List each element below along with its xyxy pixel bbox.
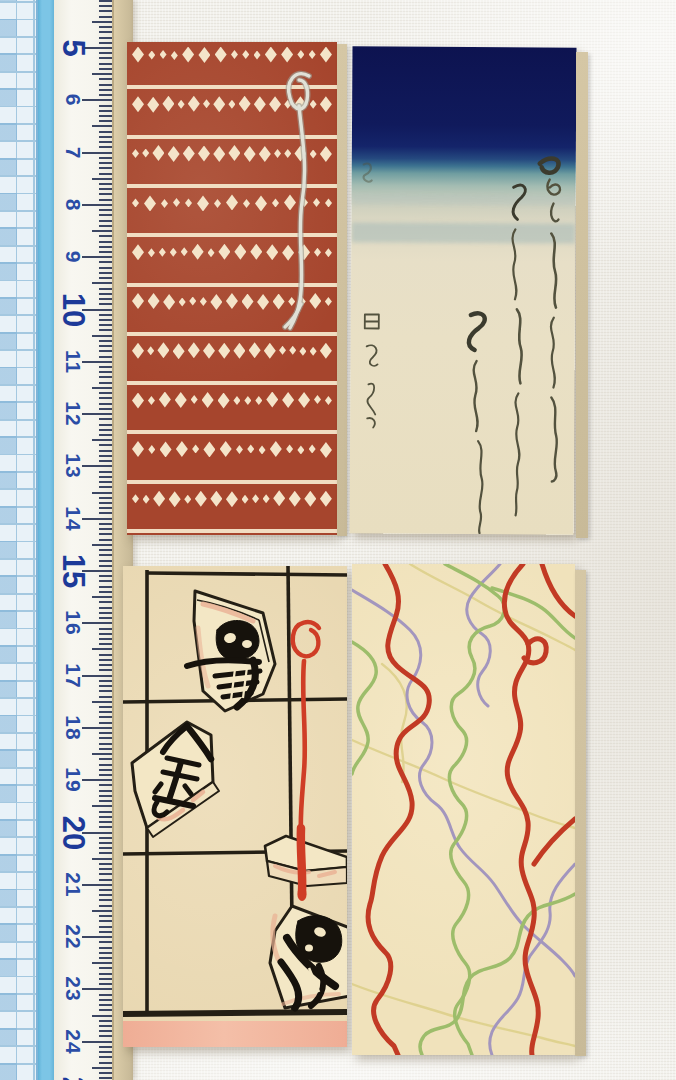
ruler-tick [99, 1062, 112, 1064]
ruler-tick [99, 94, 112, 96]
ruler-tick [99, 403, 112, 405]
ruler-tick [92, 492, 112, 494]
ruler-tick [99, 999, 112, 1001]
ruler-tick [99, 696, 112, 698]
ruler-tick [99, 78, 112, 80]
ruler-tick [99, 497, 112, 499]
ruler-tick [99, 235, 112, 237]
ruler-tick [92, 596, 112, 598]
ruler-number: 15 [55, 554, 91, 588]
ruler-tick [99, 84, 112, 86]
ruler-tick [99, 664, 112, 666]
ruler-tick [99, 314, 112, 316]
ruler-tick [99, 350, 112, 352]
ruler-tick [99, 816, 112, 818]
ruler-tick [99, 1025, 112, 1027]
ruler-tick [99, 173, 112, 175]
ruler-tick [82, 988, 112, 990]
ruler-tick [99, 591, 112, 593]
ruler-tick [99, 879, 112, 881]
ruler-tick [99, 994, 112, 996]
ruler-tick [99, 899, 112, 901]
ruler-tick [99, 748, 112, 750]
ruler-tick [99, 376, 112, 378]
ruler-number: 16 [61, 611, 85, 636]
ruler-tick [99, 967, 112, 969]
ruler-tick [99, 356, 112, 358]
ruler-tick [99, 418, 112, 420]
ruler-tick [92, 1015, 112, 1017]
ruler-tick [92, 805, 112, 807]
ruler-tick [92, 858, 112, 860]
ruler-tick [99, 1077, 112, 1079]
ruler-tick [99, 345, 112, 347]
ruler-tick [99, 743, 112, 745]
ruler-tick [99, 329, 112, 331]
ruler-tick [99, 952, 112, 954]
ruler-tick [92, 701, 112, 703]
ruler-tick [99, 889, 112, 891]
ruler-number: 22 [61, 924, 85, 949]
ruler-tick [82, 465, 112, 467]
shogi-piece-bottom [270, 906, 347, 1008]
ruler-number: 11 [61, 350, 85, 374]
ruler-tick [99, 863, 112, 865]
ruler-tick [99, 16, 112, 18]
ruler-tick [99, 800, 112, 802]
ruler-tick [99, 580, 112, 582]
ruler-tick [99, 790, 112, 792]
ruler-tick [99, 539, 112, 541]
ruler-tick [99, 983, 112, 985]
card-tangled-ribbons [352, 564, 575, 1055]
ruler-tick [82, 779, 112, 781]
ruler-tick [99, 784, 112, 786]
ruler-tick [82, 99, 112, 101]
ruler-tick [92, 910, 112, 912]
ruler-tick [92, 178, 112, 180]
photo-scene: 5678910111213141516171819202122232425 [0, 0, 676, 1080]
ruler-tick [99, 319, 112, 321]
ruler-tick [92, 230, 112, 232]
ruler-tick [99, 612, 112, 614]
ruler-tick [99, 837, 112, 839]
ruler-tick [99, 267, 112, 269]
ruler-tick [92, 962, 112, 964]
ruler-tick [99, 528, 112, 530]
ribbons-card-edge-shadow [575, 570, 586, 1056]
ruler-tick [99, 533, 112, 535]
ruler-tick [99, 429, 112, 431]
ruler-tick [99, 915, 112, 917]
ruler-tick [99, 131, 112, 133]
ruler-tick [99, 1046, 112, 1048]
ruler-tick [99, 188, 112, 190]
ruler-tick [99, 424, 112, 426]
ruler-tick [99, 659, 112, 661]
ruler-tick [99, 1009, 112, 1011]
ruler-tick [99, 26, 112, 28]
ruler-number: 19 [61, 768, 85, 793]
ruler-tick [92, 648, 112, 650]
ruler-tick [82, 204, 112, 206]
ruler-tick [99, 774, 112, 776]
calligraphy-ink [350, 46, 577, 534]
ruler-tick [92, 753, 112, 755]
ruler-tick [99, 669, 112, 671]
ruler-tick [99, 68, 112, 70]
ruler-tick [99, 947, 112, 949]
ruler-tick [99, 0, 112, 2]
ruler-tick [99, 868, 112, 870]
ruler-tick [99, 560, 112, 562]
ruler-tick [82, 361, 112, 363]
ruler-tick [99, 209, 112, 211]
ruler-tick [99, 1020, 112, 1022]
ruler-tick [99, 303, 112, 305]
ruler-tick [82, 256, 112, 258]
ruler-tick [99, 199, 112, 201]
pink-footer-band [123, 1021, 347, 1047]
white-string-drawing [127, 42, 337, 535]
ruler-tick [99, 183, 112, 185]
ruler-number: 9 [61, 251, 85, 264]
ruler-tick [92, 335, 112, 337]
ruler-tick [99, 220, 112, 222]
ruler-tick [82, 727, 112, 729]
ruler-tick [99, 450, 112, 452]
ruler-tick [82, 413, 112, 415]
ruler-tick-scale [0, 0, 112, 1080]
shogi-piece-gold [132, 722, 219, 837]
ruler-number: 21 [61, 872, 85, 897]
ruler-tick [99, 115, 112, 117]
ruler-tick [99, 371, 112, 373]
ruler-tick [99, 821, 112, 823]
ruler-tick [82, 1041, 112, 1043]
ruler-tick [99, 5, 112, 7]
ruler-tick [99, 920, 112, 922]
ruler-tick [99, 711, 112, 713]
ruler-tick [99, 926, 112, 928]
ribbon-lines [352, 564, 575, 1055]
ruler-tick [99, 1051, 112, 1053]
ruler-tick [99, 764, 112, 766]
ruler-tick [99, 607, 112, 609]
ruler-tick [99, 63, 112, 65]
ruler-tick [99, 633, 112, 635]
ruler-tick [99, 444, 112, 446]
ruler-tick [99, 366, 112, 368]
ruler-tick [99, 811, 112, 813]
ruler-tick [99, 1004, 112, 1006]
shogi-drawing [123, 566, 347, 1047]
ruler-tick [99, 978, 112, 980]
ruler-number: 12 [61, 401, 85, 426]
ruler-tick [99, 565, 112, 567]
ruler-tick [99, 434, 112, 436]
ruler-tick [99, 392, 112, 394]
ruler-tick [99, 162, 112, 164]
ruler-tick [99, 288, 112, 290]
ruler-tick [99, 481, 112, 483]
ruler-tick [99, 110, 112, 112]
ruler-tick [99, 842, 112, 844]
indigo-card-edge-shadow [576, 52, 588, 538]
ruler-tick [99, 146, 112, 148]
ruler-tick [99, 554, 112, 556]
ruler-tick [92, 282, 112, 284]
ruler-tick [99, 37, 112, 39]
ruler-tick [99, 643, 112, 645]
ruler-tick [99, 251, 112, 253]
ruler-number: 23 [61, 977, 85, 1002]
ruler-tick [99, 931, 112, 933]
ruler-tick [99, 628, 112, 630]
ruler-number: 14 [61, 506, 85, 531]
ruler-tick [99, 507, 112, 509]
ruler-tick [99, 105, 112, 107]
ruler-tick [82, 622, 112, 624]
ruler-tick [99, 769, 112, 771]
ruler-tick [99, 455, 112, 457]
ruler-tick [99, 758, 112, 760]
ruler-tick [99, 523, 112, 525]
ruler-tick [99, 460, 112, 462]
ruler-tick [99, 397, 112, 399]
ruler-tick [99, 638, 112, 640]
ruler-tick [99, 722, 112, 724]
ruler-number: 24 [61, 1029, 85, 1054]
ruler-tick [99, 31, 112, 33]
ruler-tick [99, 120, 112, 122]
ruler-tick [99, 408, 112, 410]
ruler-tick [99, 1035, 112, 1037]
ruler-tick [99, 847, 112, 849]
ruler-tick [99, 654, 112, 656]
ruler-tick [99, 941, 112, 943]
card-red-diamond-pattern [127, 42, 337, 535]
ruler-tick [99, 157, 112, 159]
ruler-tick [99, 690, 112, 692]
ruler-tick [99, 57, 112, 59]
ruler-tick [99, 42, 112, 44]
ruler-tick [92, 544, 112, 546]
ruler-tick [99, 732, 112, 734]
ruler-number: 10 [55, 292, 91, 326]
ruler-tick [99, 298, 112, 300]
ruler-tick [99, 795, 112, 797]
ruler-tick [99, 873, 112, 875]
ruler-tick [82, 518, 112, 520]
ruler-number: 17 [61, 663, 85, 688]
ruler-tick [99, 486, 112, 488]
ruler-tick [99, 471, 112, 473]
ruler-tick [99, 293, 112, 295]
ruler-tick [99, 272, 112, 274]
ruler-tick [99, 957, 112, 959]
ruler-tick [99, 193, 112, 195]
ruler-tick [99, 852, 112, 854]
ruler-tick [99, 214, 112, 216]
ruler-tick [99, 737, 112, 739]
ruler-tick [99, 680, 112, 682]
ruler-tick [82, 675, 112, 677]
ruler-tick [99, 167, 112, 169]
ruler-number: 5 [55, 39, 91, 56]
red-card-edge-shadow [337, 44, 347, 536]
shogi-piece-top [187, 591, 275, 711]
ruler-tick [99, 1030, 112, 1032]
ruler-tick [99, 716, 112, 718]
ruler-tick [99, 10, 112, 12]
ruler-number: 6 [61, 94, 85, 107]
ruler-number: 18 [61, 715, 85, 740]
ruler-tick [99, 382, 112, 384]
ruler-number: 13 [61, 454, 85, 479]
ruler-tick [92, 21, 112, 23]
ruler-tick [99, 324, 112, 326]
ruler-tick [92, 1067, 112, 1069]
ruler-tick [99, 601, 112, 603]
ruler-tick [92, 73, 112, 75]
ruler-number: 8 [61, 199, 85, 212]
ruler-tick [99, 277, 112, 279]
ruler-tick [99, 973, 112, 975]
ruler-tick [99, 685, 112, 687]
ruler-tick [99, 225, 112, 227]
ruler-tick [99, 476, 112, 478]
card-shogi-pieces [123, 566, 347, 1047]
ruler-tick [99, 575, 112, 577]
ruler-tick [92, 387, 112, 389]
ruler-tick [99, 894, 112, 896]
ruler-tick [92, 439, 112, 441]
ruler-tick [99, 706, 112, 708]
ruler-number: 20 [55, 815, 91, 849]
ruler-tick [82, 936, 112, 938]
ruler-tick [82, 152, 112, 154]
ruler-tick [99, 1056, 112, 1058]
ruler-tick [99, 617, 112, 619]
ruler-tick [99, 241, 112, 243]
ruler-tick [99, 340, 112, 342]
ruler-tick [99, 136, 112, 138]
ruler-tick [99, 52, 112, 54]
ruler-tick [99, 141, 112, 143]
ruler-tick [99, 502, 112, 504]
ruler-number: 7 [61, 146, 85, 159]
ruler-tick [99, 1072, 112, 1074]
card-indigo-calligraphy [350, 46, 577, 534]
ruler-tick [99, 905, 112, 907]
ruler-tick [99, 261, 112, 263]
ruler-tick [99, 586, 112, 588]
ruler-tick [99, 89, 112, 91]
ruler-tick [82, 884, 112, 886]
ruler-tick [92, 125, 112, 127]
ruler-tick [99, 826, 112, 828]
ruler-tick [99, 549, 112, 551]
ruler-tick [99, 246, 112, 248]
ruler-tick [99, 512, 112, 514]
